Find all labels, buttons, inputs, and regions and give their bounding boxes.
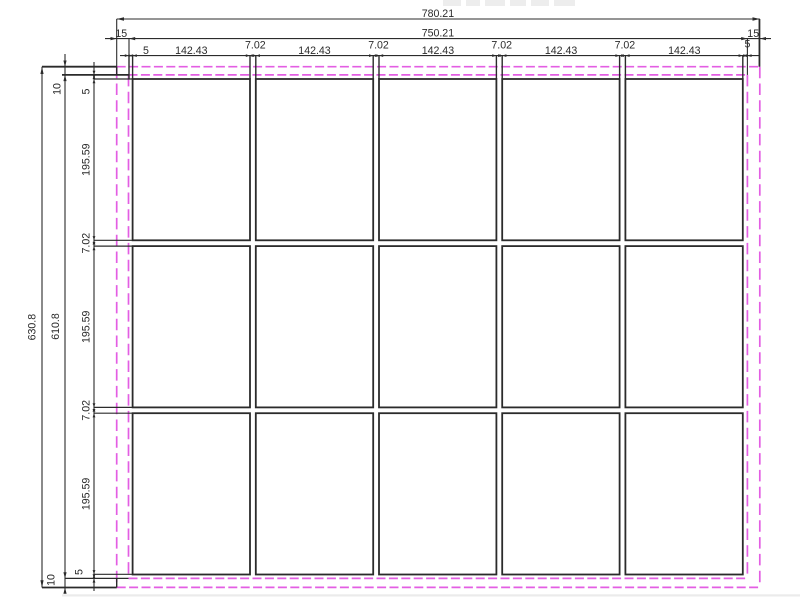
svg-text:142.43: 142.43: [545, 45, 578, 57]
svg-text:195.59: 195.59: [81, 143, 93, 176]
svg-text:7.02: 7.02: [491, 40, 512, 52]
svg-text:5: 5: [143, 45, 149, 57]
svg-text:7.02: 7.02: [245, 40, 266, 52]
svg-text:5: 5: [745, 39, 751, 51]
svg-text:142.43: 142.43: [175, 45, 208, 57]
svg-text:142.43: 142.43: [422, 45, 455, 57]
svg-text:630.8: 630.8: [27, 314, 39, 341]
svg-text:15: 15: [115, 28, 127, 40]
svg-text:5: 5: [81, 88, 93, 94]
svg-text:750.21: 750.21: [422, 27, 455, 39]
svg-text:142.43: 142.43: [298, 45, 331, 57]
svg-text:7.02: 7.02: [81, 233, 93, 254]
svg-text:142.43: 142.43: [668, 45, 701, 57]
svg-text:5: 5: [74, 569, 86, 575]
svg-text:7.02: 7.02: [368, 40, 389, 52]
svg-text:10: 10: [46, 574, 58, 586]
svg-text:780.21: 780.21: [422, 8, 455, 20]
svg-text:10: 10: [52, 83, 64, 95]
svg-text:610.8: 610.8: [50, 313, 62, 340]
svg-text:7.02: 7.02: [81, 400, 93, 421]
svg-text:7.02: 7.02: [615, 40, 636, 52]
svg-text:195.59: 195.59: [81, 310, 93, 343]
svg-text:195.59: 195.59: [81, 478, 93, 511]
